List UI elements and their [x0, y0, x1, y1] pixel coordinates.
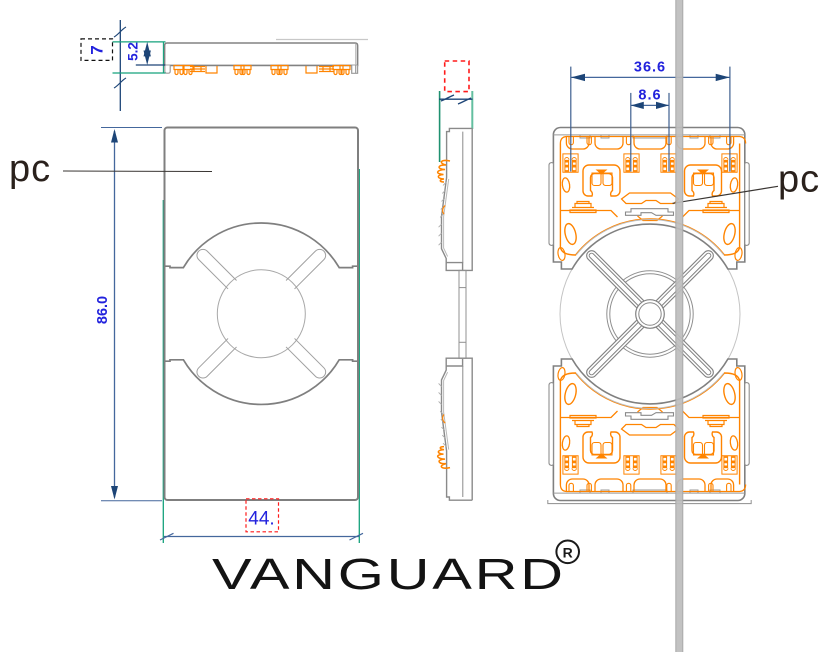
svg-text:8.6: 8.6 — [638, 88, 661, 104]
svg-text:44.: 44. — [248, 509, 274, 530]
svg-text:R: R — [563, 544, 573, 560]
svg-text:86.0: 86.0 — [95, 296, 111, 324]
svg-text:5.2: 5.2 — [126, 42, 141, 61]
svg-text:36.6: 36.6 — [634, 60, 666, 76]
svg-text:pc: pc — [9, 148, 51, 190]
svg-text:VANGUARD: VANGUARD — [212, 550, 566, 599]
svg-text:7: 7 — [88, 45, 107, 54]
svg-text:pc: pc — [778, 159, 820, 201]
